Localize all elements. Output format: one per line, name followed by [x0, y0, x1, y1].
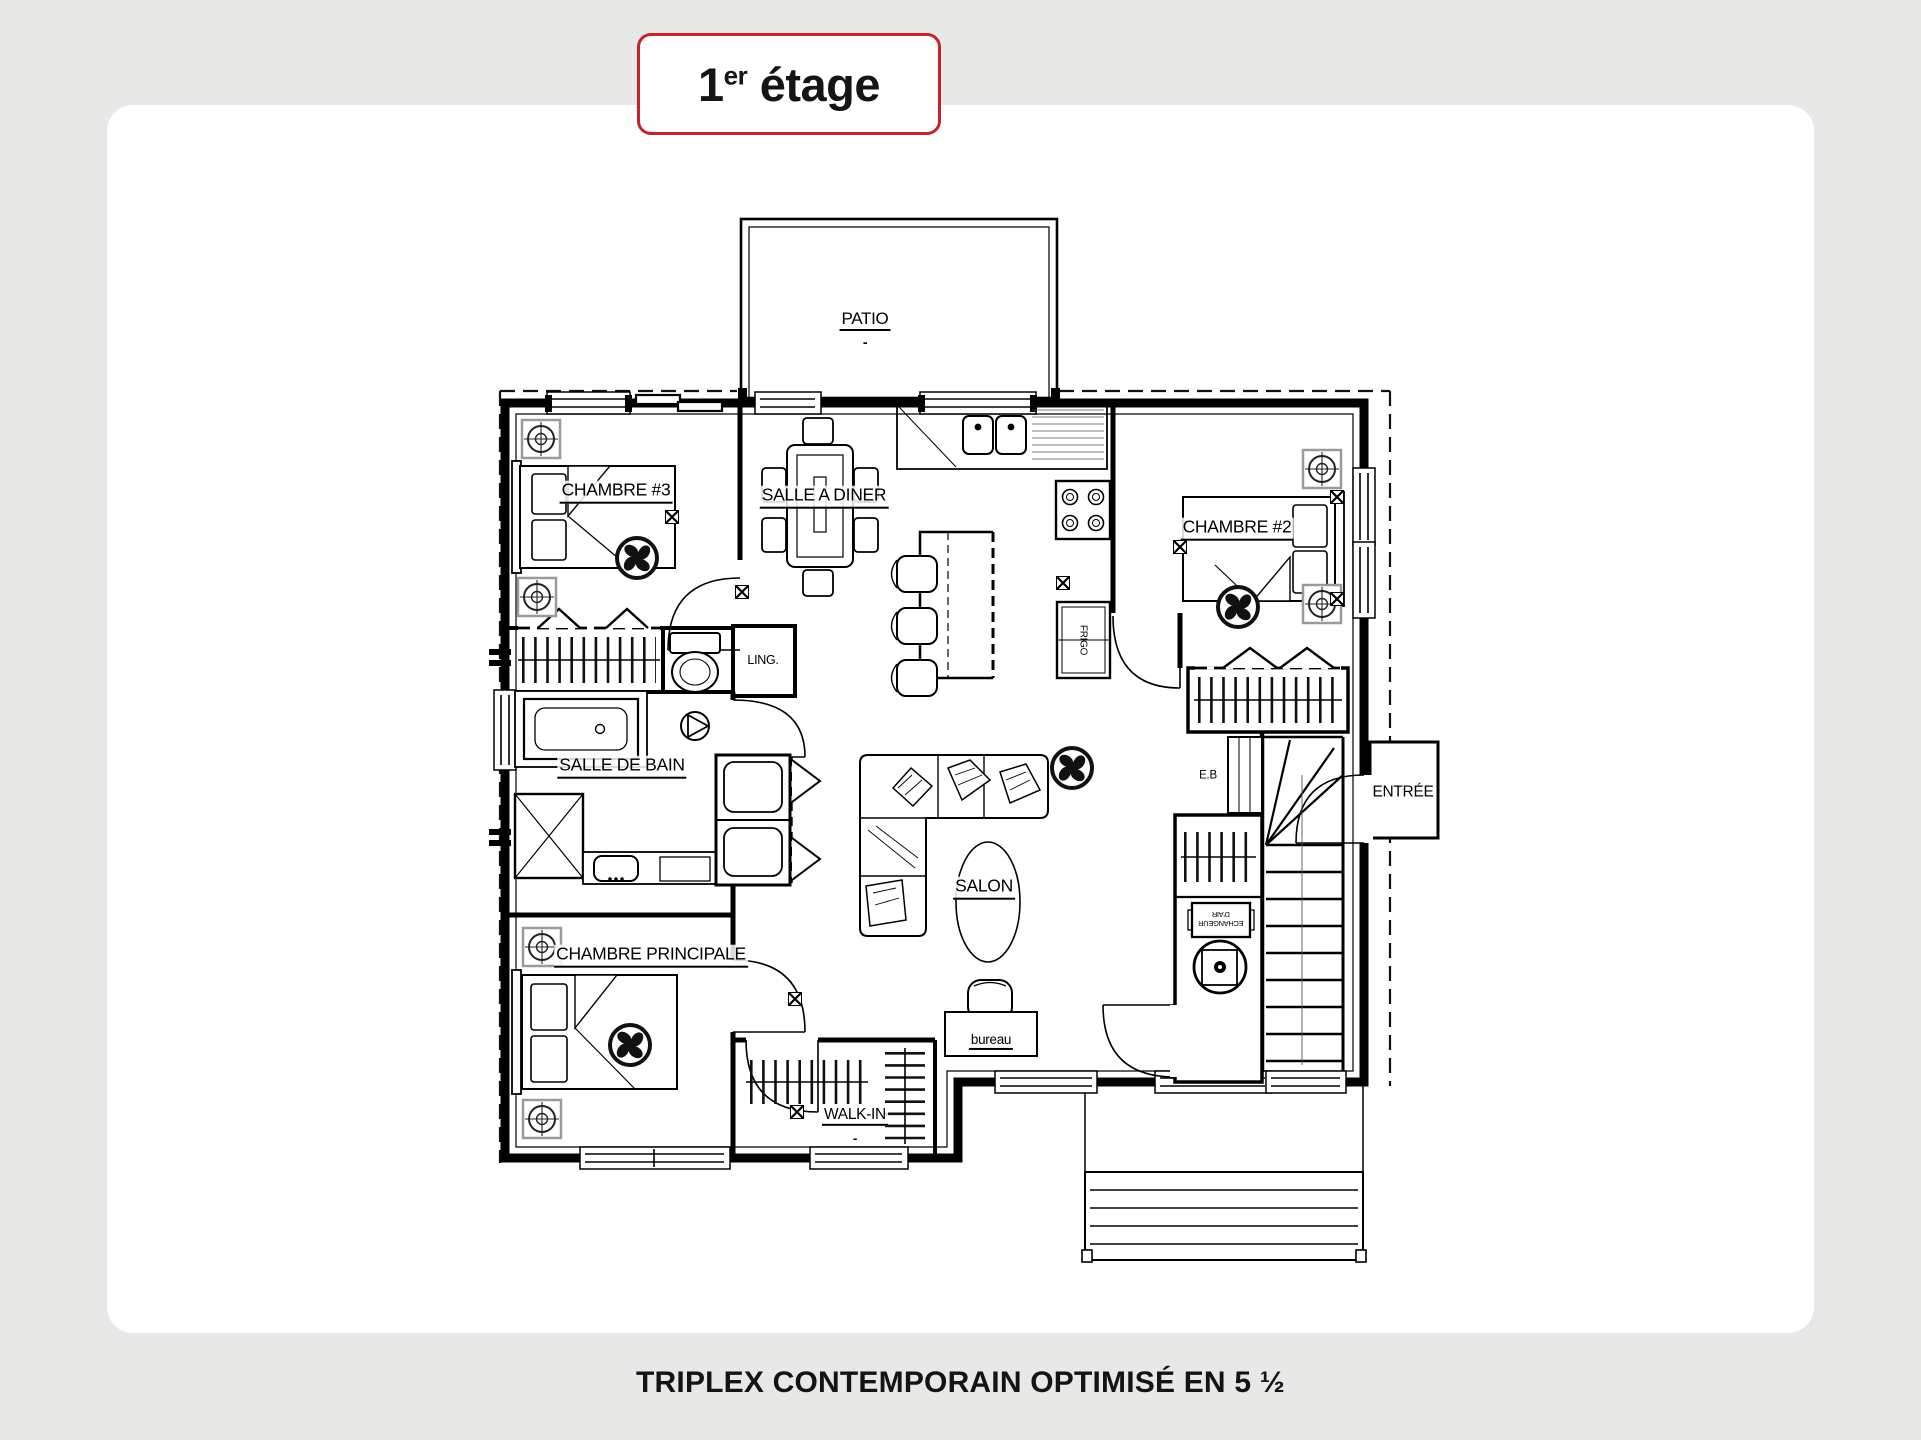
appliance-label-frigo: FRIGO [1077, 623, 1088, 657]
page-caption: TRIPLEX CONTEMPORAIN OPTIMISÉ EN 5 ½ [0, 1366, 1921, 1400]
room-label-chambre-principale: CHAMBRE PRINCIPALE [554, 945, 748, 968]
floor-badge-text: 1er étage [698, 57, 880, 112]
water-heater [1194, 941, 1246, 993]
room-label-entree: ENTRÉE [1370, 783, 1435, 800]
room-label-chambre2: CHAMBRE #2 [1181, 518, 1294, 541]
walkin-area-dash: - [851, 1132, 859, 1147]
room-label-patio: PATIO [840, 309, 891, 331]
room-label-salon: SALON [953, 877, 1015, 900]
room-label-salle-de-bain: SALLE DE BAIN [557, 756, 686, 779]
exhaust-fan-icon [681, 712, 709, 740]
appliance-label-echangeur: ECHANGEUR D'AIR [1196, 910, 1245, 928]
bed-principale [512, 970, 677, 1094]
vanity [583, 852, 717, 884]
room-label-eb: E.B [1197, 770, 1219, 783]
shower [515, 794, 583, 878]
patio-area-dash: - [861, 335, 869, 351]
toilet [670, 633, 720, 692]
room-label-chambre3: CHAMBRE #3 [560, 481, 673, 504]
echangeur-line1: ECHANGEUR [1198, 919, 1243, 928]
eb-shaft [1228, 737, 1262, 813]
patio-outline [738, 219, 1060, 401]
room-label-bureau: bureau [969, 1032, 1013, 1050]
floor-ordinal: er [724, 60, 748, 90]
floor-plan [0, 0, 1921, 1440]
floor-number: 1 [698, 58, 724, 111]
room-label-ling: LING. [745, 653, 780, 667]
bar-stools [892, 556, 938, 696]
front-steps [1082, 1086, 1366, 1262]
mech-closet [1170, 815, 1262, 1082]
stove [1056, 481, 1110, 539]
room-label-salle-a-diner: SALLE A DINER [760, 486, 889, 509]
floor-word: étage [747, 58, 880, 111]
floor-badge: 1er étage [637, 33, 941, 135]
echangeur-line2: D'AIR [1198, 910, 1243, 919]
room-label-walkin: WALK-IN [822, 1106, 888, 1126]
